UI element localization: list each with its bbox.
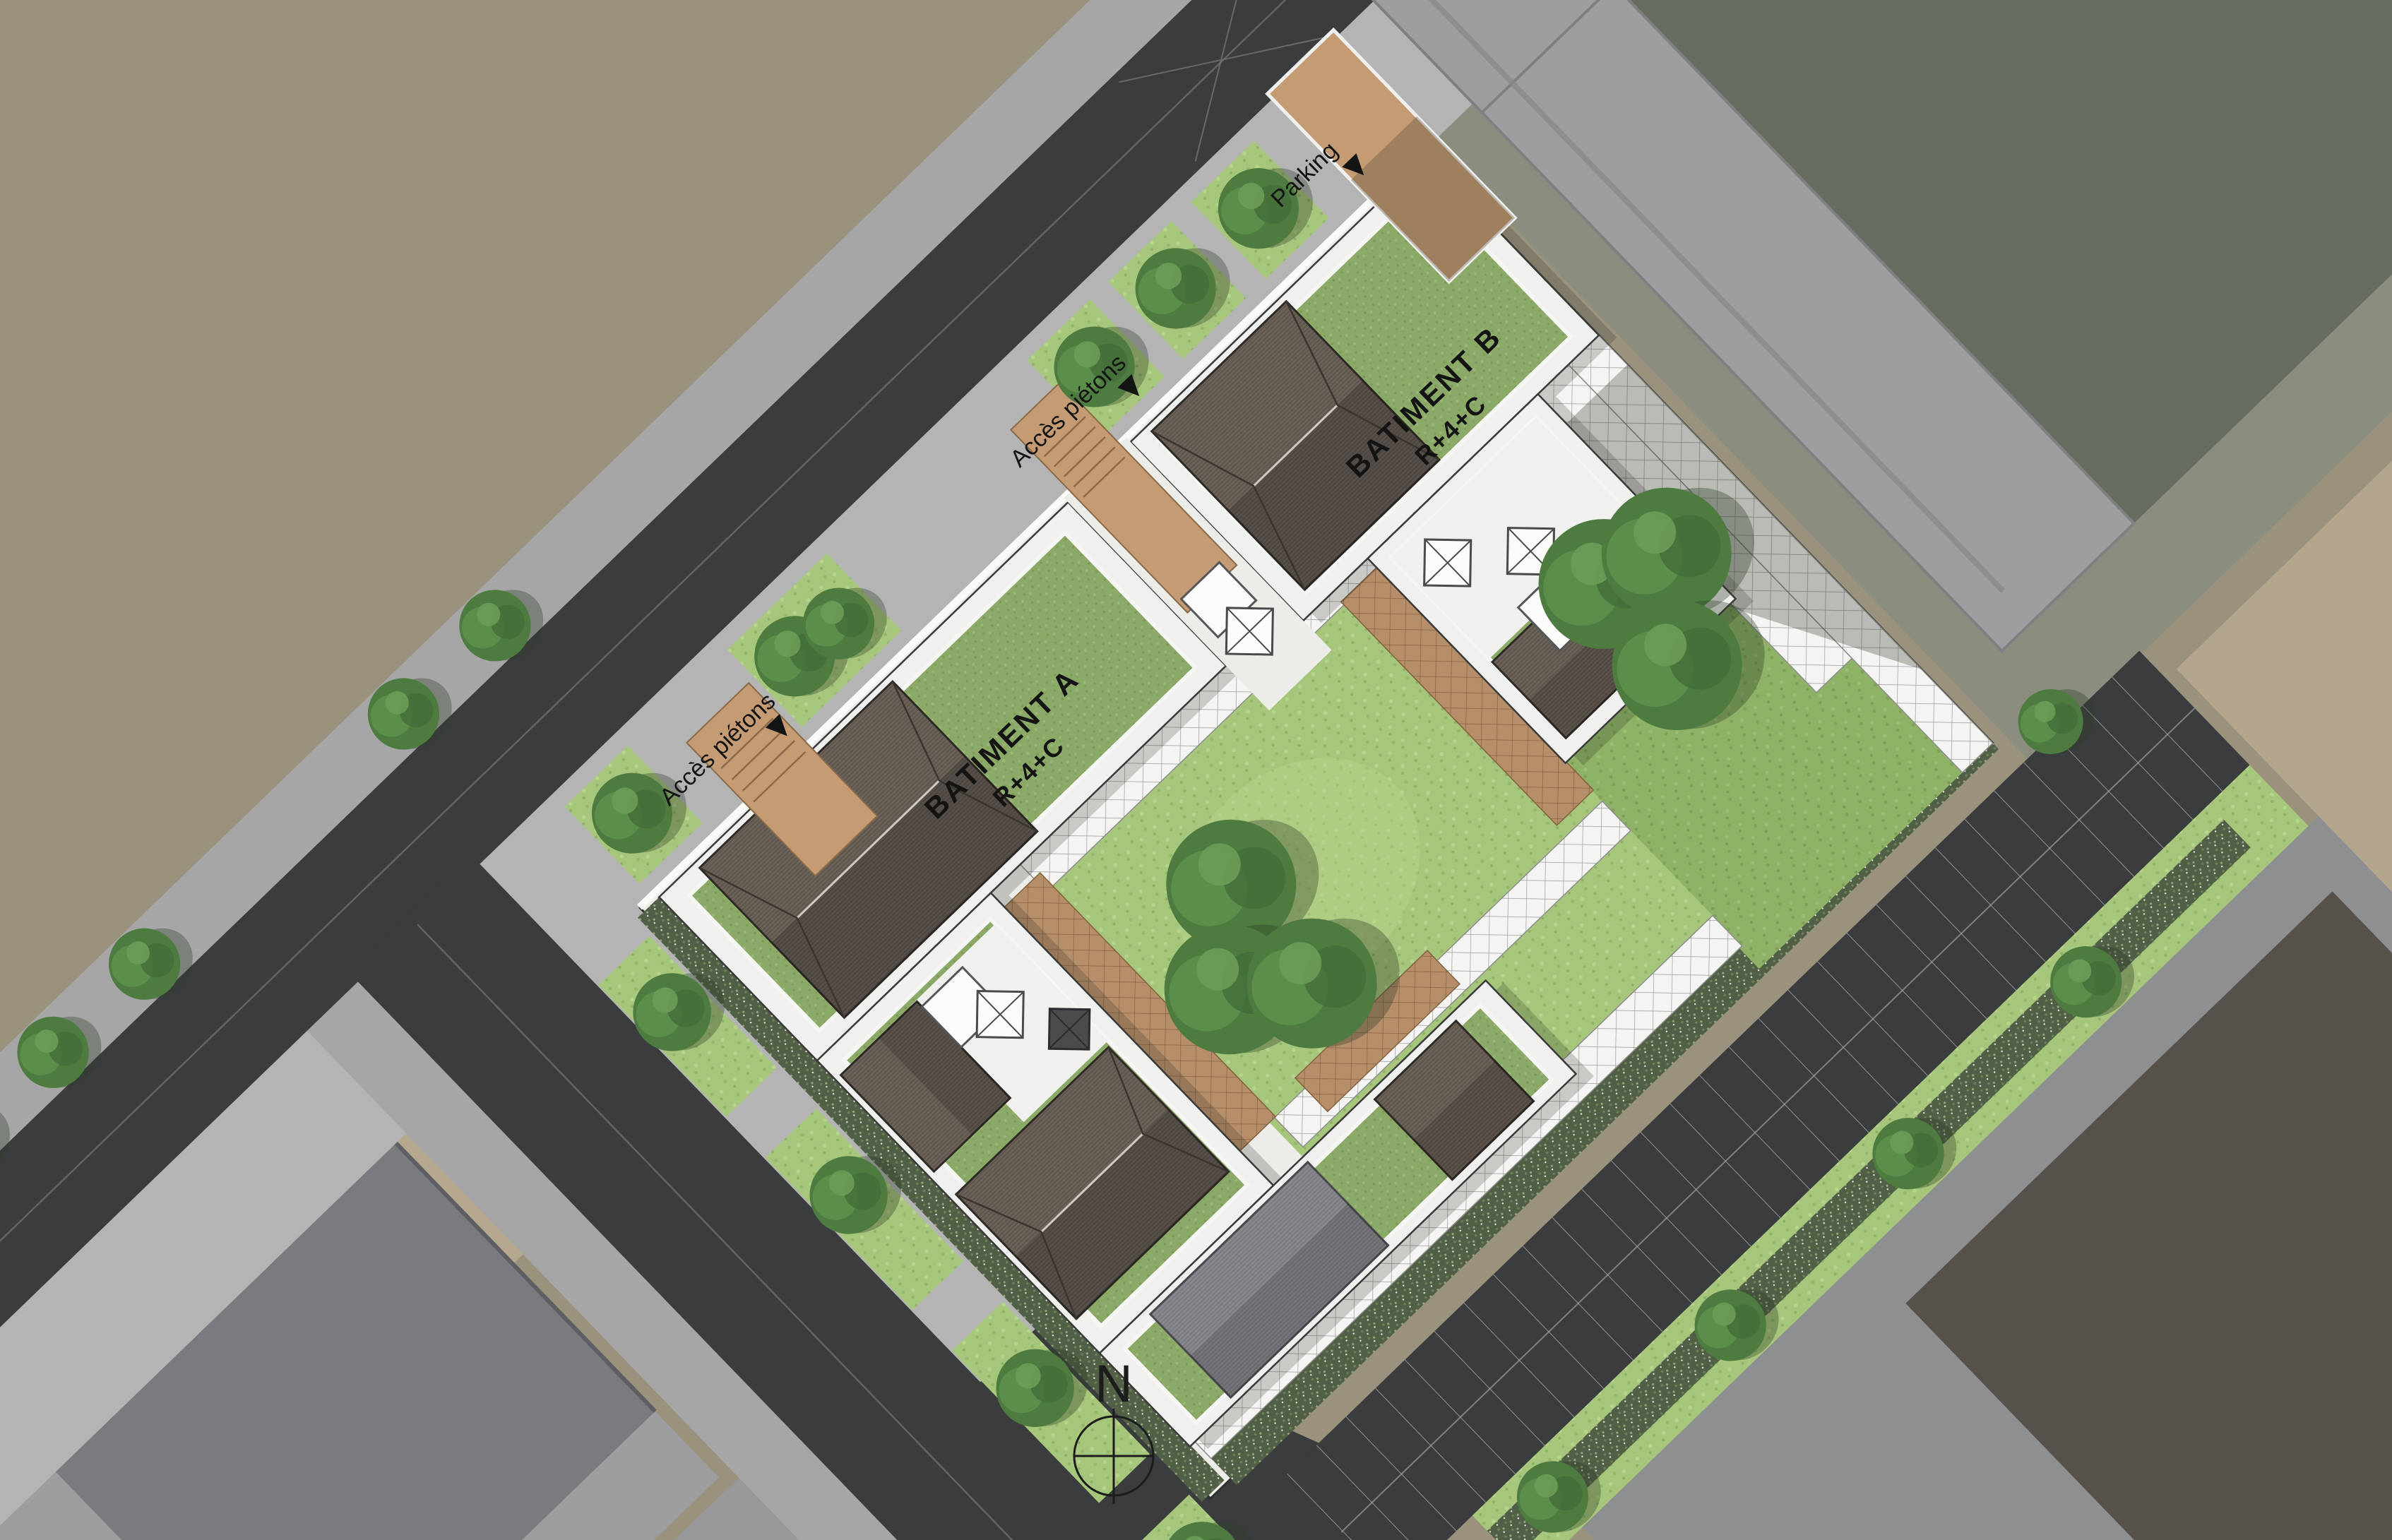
rotated-site-world: BATIMENT A R+4+C BATIMENT B R+4+ — [0, 0, 2392, 1540]
site-plan-canvas: BATIMENT A R+4+C BATIMENT B R+4+ — [0, 0, 2392, 1540]
north-label: N — [1095, 1354, 1132, 1413]
